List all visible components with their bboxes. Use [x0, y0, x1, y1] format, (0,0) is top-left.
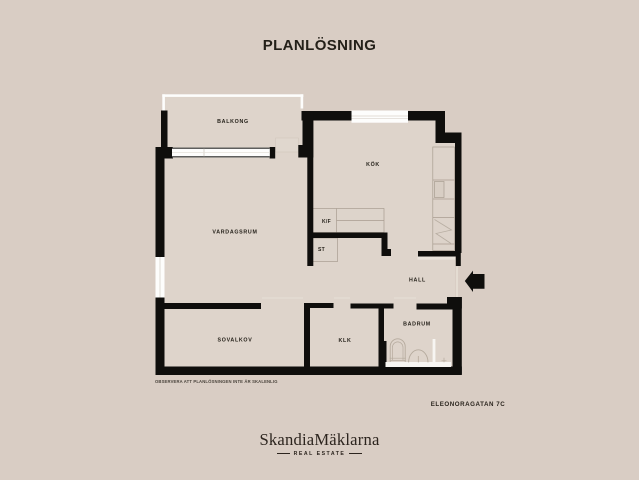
svg-text:BADRUM: BADRUM — [403, 322, 431, 328]
svg-text:ST: ST — [318, 247, 325, 253]
svg-text:K/F: K/F — [322, 219, 331, 225]
svg-text:KLK: KLK — [339, 338, 352, 344]
svg-text:SOVALKOV: SOVALKOV — [218, 338, 253, 344]
svg-text:KÖK: KÖK — [366, 161, 380, 168]
svg-text:VARDAGSRUM: VARDAGSRUM — [212, 229, 257, 235]
svg-text:BALKONG: BALKONG — [217, 119, 249, 125]
svg-text:HALL: HALL — [409, 278, 426, 284]
